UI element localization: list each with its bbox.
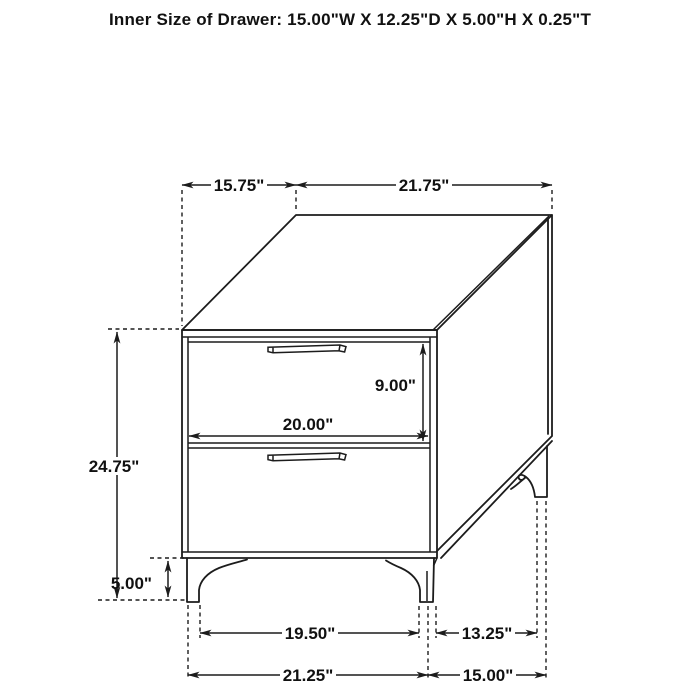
dim-label-overall-height: 24.75" [85,457,145,476]
dim-label-top-depth: 15.75" [211,176,267,195]
front-face-inner-lines [182,337,437,552]
dim-label-top-width: 21.75" [396,176,452,195]
cabinet-front-face [182,330,437,558]
dim-label-text: 13.25" [462,624,513,643]
dim-label-side-depth-feet: 15.00" [460,666,516,685]
dim-label-front-width-feet: 21.25" [280,666,336,685]
extension-lines [98,190,552,680]
dim-label-drawer-width: 20.00" [283,415,334,434]
right-panel-edges [437,215,552,558]
dim-label-text: 24.75" [89,457,140,476]
dimension-diagram-page: Inner Size of Drawer: 15.00"W X 12.25"D … [0,0,700,700]
top-drawer-handle [268,345,346,353]
dim-label-text: 5.00" [111,574,152,593]
dim-label-text: 21.25" [283,666,334,685]
handle-bar [268,453,346,461]
dim-label-text: 15.75" [214,176,265,195]
handle-bar [268,345,346,353]
dim-label-text: 21.75" [399,176,450,195]
dim-label-side-legs-inner: 13.25" [459,624,515,643]
dim-label-leg-height: 5.00" [111,574,152,593]
front-left-leg [187,558,247,602]
dimension-annotations: 15.75" 21.75" 24.75" 5.00" 9.00" 20.00" … [85,176,552,685]
dim-label-text: 19.50" [285,624,336,643]
nightstand-line-drawing: 15.75" 21.75" 24.75" 5.00" 9.00" 20.00" … [0,0,700,700]
dim-label-text: 15.00" [463,666,514,685]
cabinet-drawing [182,215,552,602]
front-right-leg-detail [427,558,437,601]
dim-label-text: 9.00" [375,376,416,395]
cabinet-top-edge-inner [433,216,549,330]
dim-label-drawer-height: 9.00" [375,376,416,395]
dim-label-front-legs-inner: 19.50" [282,624,338,643]
dim-label-text: 20.00" [283,415,334,434]
bottom-drawer-handle [268,453,346,461]
cabinet-top-surface [182,215,552,330]
